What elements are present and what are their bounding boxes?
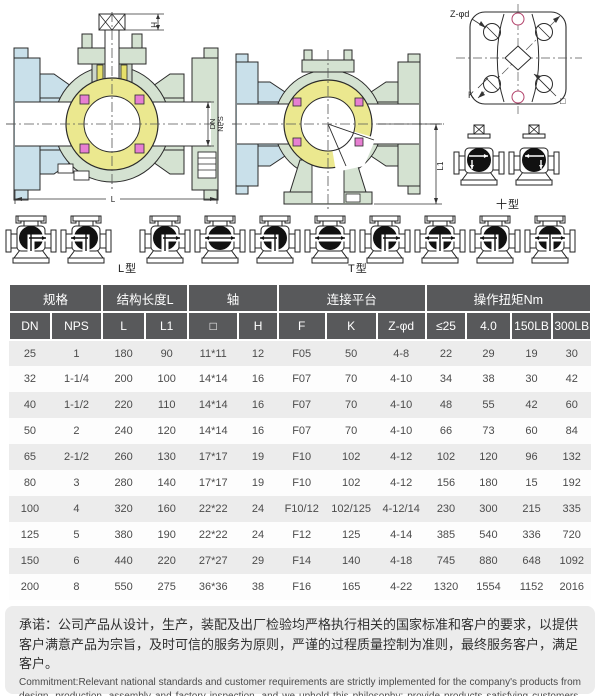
column-group-header: 结构长度L [102, 284, 188, 312]
table-cell: 32 [9, 366, 51, 392]
table-cell: 200 [102, 366, 145, 392]
table-cell: 50 [326, 340, 377, 366]
cross-type-label: 十型 [496, 196, 520, 212]
table-cell: 19 [238, 470, 278, 496]
table-cell: 230 [426, 496, 467, 522]
table-cell: 300 [466, 496, 510, 522]
table-cell: 36*36 [188, 574, 238, 600]
table-row: 200855027536*3638F161654-221320155411522… [9, 574, 591, 600]
column-header: DN [9, 312, 51, 340]
table-cell: 1-1/2 [51, 392, 102, 418]
table-cell: 4-10 [377, 392, 426, 418]
table-cell: F14 [278, 548, 326, 574]
table-cell: 17*17 [188, 470, 238, 496]
table-cell: 14*14 [188, 418, 238, 444]
table-cell: 60 [511, 418, 553, 444]
table-cell: 720 [552, 522, 591, 548]
table-cell: 1320 [426, 574, 467, 600]
column-header: H [238, 312, 278, 340]
valve-flow-symbol-left-right [193, 214, 247, 271]
commitment-text-en: Commitment:Relevant national standards a… [19, 676, 581, 696]
table-cell: 4 [51, 496, 102, 522]
dim-label-nps: NPS [216, 116, 225, 131]
table-cell: 8 [51, 574, 102, 600]
table-cell: 165 [326, 574, 377, 600]
column-header: K [326, 312, 377, 340]
table-cell: 29 [238, 548, 278, 574]
table-cell: 160 [145, 496, 188, 522]
l-type-label: L型 [118, 260, 137, 276]
table-cell: 102 [426, 444, 467, 470]
table-cell: 275 [145, 574, 188, 600]
commitment-text-cn: 承诺：公司产品从设计，生产，装配及出厂检验均严格执行相关的国家标准和客户的要求，… [19, 615, 581, 674]
table-cell: 16 [238, 392, 278, 418]
table-cell: 70 [326, 418, 377, 444]
valve-flow-symbol-up-left-right [523, 214, 577, 271]
table-cell: 4-12/14 [377, 496, 426, 522]
table-row: 652-1/226013017*1719F101024-121021209613… [9, 444, 591, 470]
table-row: 125538019022*2224F121254-14385540336720 [9, 522, 591, 548]
table-cell: 192 [552, 470, 591, 496]
table-cell: 4-12 [377, 444, 426, 470]
table-cell: 150 [9, 548, 51, 574]
table-cell: 180 [466, 470, 510, 496]
table-cell: 132 [552, 444, 591, 470]
table-cell: 440 [102, 548, 145, 574]
table-cell: 125 [9, 522, 51, 548]
table-cell: 4-14 [377, 522, 426, 548]
table-cell: F07 [278, 392, 326, 418]
table-cell: F10/12 [278, 496, 326, 522]
column-header: 4.0 [466, 312, 510, 340]
technical-drawings: H DN NPS L [0, 0, 600, 282]
table-cell: 6 [51, 548, 102, 574]
mounting-flange-top-view: Z-φd K □ [448, 2, 598, 120]
table-cell: 240 [102, 418, 145, 444]
table-cell: 336 [511, 522, 553, 548]
table-cell: 24 [238, 522, 278, 548]
table-cell: 2016 [552, 574, 591, 600]
table-cell: 1152 [511, 574, 553, 600]
table-cell: 34 [426, 366, 467, 392]
table-cell: 745 [426, 548, 467, 574]
table-cell: 70 [326, 366, 377, 392]
table-cell: 38 [466, 366, 510, 392]
table-cell: 102/125 [326, 496, 377, 522]
table-row: 50224012014*1416F07704-1066736084 [9, 418, 591, 444]
table-cell: 120 [466, 444, 510, 470]
table-cell: 220 [102, 392, 145, 418]
table-cell: F07 [278, 418, 326, 444]
table-cell: 156 [426, 470, 467, 496]
table-cell: 4-10 [377, 418, 426, 444]
table-cell: 42 [511, 392, 553, 418]
catalog-page: H DN NPS L [0, 0, 600, 696]
column-header: F [278, 312, 326, 340]
column-header: 300LB [552, 312, 591, 340]
table-cell: 16 [238, 418, 278, 444]
column-header: Z-φd [377, 312, 426, 340]
table-cell: 2 [51, 418, 102, 444]
valve-flow-symbol-up-left [468, 214, 522, 271]
table-cell: 14*14 [188, 366, 238, 392]
column-header: NPS [51, 312, 102, 340]
dim-label-l: L [111, 195, 116, 204]
table-cell: 550 [102, 574, 145, 600]
table-cell: 24 [238, 496, 278, 522]
table-cell: 140 [145, 470, 188, 496]
table-cell: 12 [238, 340, 278, 366]
table-cell: F16 [278, 574, 326, 600]
spec-table-columns: DNNPSLL1□HFKZ-φd≤254.0150LB300LB [9, 312, 591, 340]
table-cell: 55 [466, 392, 510, 418]
table-cell: 84 [552, 418, 591, 444]
valve-side-section-drawing: L1 [228, 20, 450, 216]
table-cell: 102 [326, 470, 377, 496]
valve-flow-symbol-right-down [452, 124, 506, 193]
table-row: 401-1/222011014*1416F07704-1048554260 [9, 392, 591, 418]
table-cell: 60 [552, 392, 591, 418]
column-group-header: 轴 [188, 284, 278, 312]
table-cell: 4-8 [377, 340, 426, 366]
table-cell: 29 [466, 340, 510, 366]
commitment-block: 承诺：公司产品从设计，生产，装配及出厂检验均严格执行相关的国家标准和客户的要求，… [5, 606, 595, 694]
table-cell: 30 [552, 340, 591, 366]
table-cell: 215 [511, 496, 553, 522]
table-cell: 140 [326, 548, 377, 574]
table-row: 150644022027*2729F141404-187458806481092 [9, 548, 591, 574]
table-cell: 15 [511, 470, 553, 496]
table-cell: 220 [145, 548, 188, 574]
table-cell: 96 [511, 444, 553, 470]
table-cell: 48 [426, 392, 467, 418]
table-cell: 50 [9, 418, 51, 444]
table-cell: 1092 [552, 548, 591, 574]
table-cell: 4-18 [377, 548, 426, 574]
column-group-header: 规格 [9, 284, 102, 312]
table-cell: 25 [9, 340, 51, 366]
table-cell: 42 [552, 366, 591, 392]
column-group-header: 连接平台 [278, 284, 426, 312]
table-row: 80328014017*1719F101024-1215618015192 [9, 470, 591, 496]
table-cell: 1-1/4 [51, 366, 102, 392]
table-row: 2511809011*1112F05504-822291930 [9, 340, 591, 366]
table-row: 321-1/420010014*1416F07704-1034383042 [9, 366, 591, 392]
table-cell: 335 [552, 496, 591, 522]
table-cell: 120 [145, 418, 188, 444]
table-cell: 90 [145, 340, 188, 366]
valve-flow-symbol-up-left-right [413, 214, 467, 271]
table-cell: 320 [102, 496, 145, 522]
table-cell: 22*22 [188, 522, 238, 548]
table-cell: 200 [9, 574, 51, 600]
cross-type-symbol-row [452, 124, 562, 193]
l-type-symbol-row [4, 214, 114, 271]
table-cell: 70 [326, 392, 377, 418]
valve-flow-symbol-up-right [4, 214, 58, 271]
table-cell: 38 [238, 574, 278, 600]
table-cell: 4-10 [377, 366, 426, 392]
table-cell: 130 [145, 444, 188, 470]
table-cell: 66 [426, 418, 467, 444]
table-cell: 3 [51, 470, 102, 496]
spec-table-groups: 规格结构长度L轴连接平台操作扭矩Nm [9, 284, 591, 312]
valve-front-section-drawing: H DN NPS L [2, 2, 230, 214]
valve-flow-symbol-up-right [138, 214, 192, 271]
column-header: L [102, 312, 145, 340]
table-cell: F12 [278, 522, 326, 548]
table-cell: 125 [326, 522, 377, 548]
table-cell: F07 [278, 366, 326, 392]
t-type-label: T型 [348, 260, 368, 276]
valve-flow-symbol-left-down [507, 124, 561, 193]
table-cell: 2-1/2 [51, 444, 102, 470]
table-cell: 80 [9, 470, 51, 496]
column-header: 150LB [511, 312, 553, 340]
table-cell: 385 [426, 522, 467, 548]
table-cell: 40 [9, 392, 51, 418]
table-cell: 648 [511, 548, 553, 574]
table-cell: 100 [9, 496, 51, 522]
table-cell: 22 [426, 340, 467, 366]
table-cell: 260 [102, 444, 145, 470]
table-cell: F10 [278, 444, 326, 470]
table-cell: 16 [238, 366, 278, 392]
table-cell: 102 [326, 444, 377, 470]
table-row: 100432016022*2224F10/12102/1254-12/14230… [9, 496, 591, 522]
dim-label-h: H [149, 22, 158, 28]
table-cell: 14*14 [188, 392, 238, 418]
dim-label-l1: L1 [436, 161, 445, 170]
table-cell: F05 [278, 340, 326, 366]
table-cell: 73 [466, 418, 510, 444]
table-cell: 190 [145, 522, 188, 548]
table-cell: 4-22 [377, 574, 426, 600]
table-cell: 19 [238, 444, 278, 470]
table-cell: 22*22 [188, 496, 238, 522]
table-cell: 1 [51, 340, 102, 366]
table-cell: 19 [511, 340, 553, 366]
table-cell: 11*11 [188, 340, 238, 366]
dim-label-square: □ [560, 96, 566, 106]
dim-label-k: K [468, 90, 474, 100]
table-cell: 280 [102, 470, 145, 496]
table-cell: 4-12 [377, 470, 426, 496]
table-cell: 380 [102, 522, 145, 548]
table-cell: 180 [102, 340, 145, 366]
table-cell: 17*17 [188, 444, 238, 470]
column-header: L1 [145, 312, 188, 340]
table-cell: 880 [466, 548, 510, 574]
spec-table: 规格结构长度L轴连接平台操作扭矩Nm DNNPSLL1□HFKZ-φd≤254.… [8, 283, 592, 600]
dim-label-zd: Z-φd [450, 9, 469, 19]
valve-flow-symbol-up-left [248, 214, 302, 271]
column-group-header: 操作扭矩Nm [426, 284, 591, 312]
valve-flow-symbol-up-left [59, 214, 113, 271]
table-cell: 100 [145, 366, 188, 392]
table-cell: 65 [9, 444, 51, 470]
table-cell: 540 [466, 522, 510, 548]
table-cell: 5 [51, 522, 102, 548]
table-cell: 110 [145, 392, 188, 418]
table-cell: 1554 [466, 574, 510, 600]
table-cell: 30 [511, 366, 553, 392]
table-cell: F10 [278, 470, 326, 496]
column-header: □ [188, 312, 238, 340]
table-cell: 27*27 [188, 548, 238, 574]
spec-table-body: 2511809011*1112F05504-822291930321-1/420… [9, 340, 591, 600]
column-header: ≤25 [426, 312, 467, 340]
